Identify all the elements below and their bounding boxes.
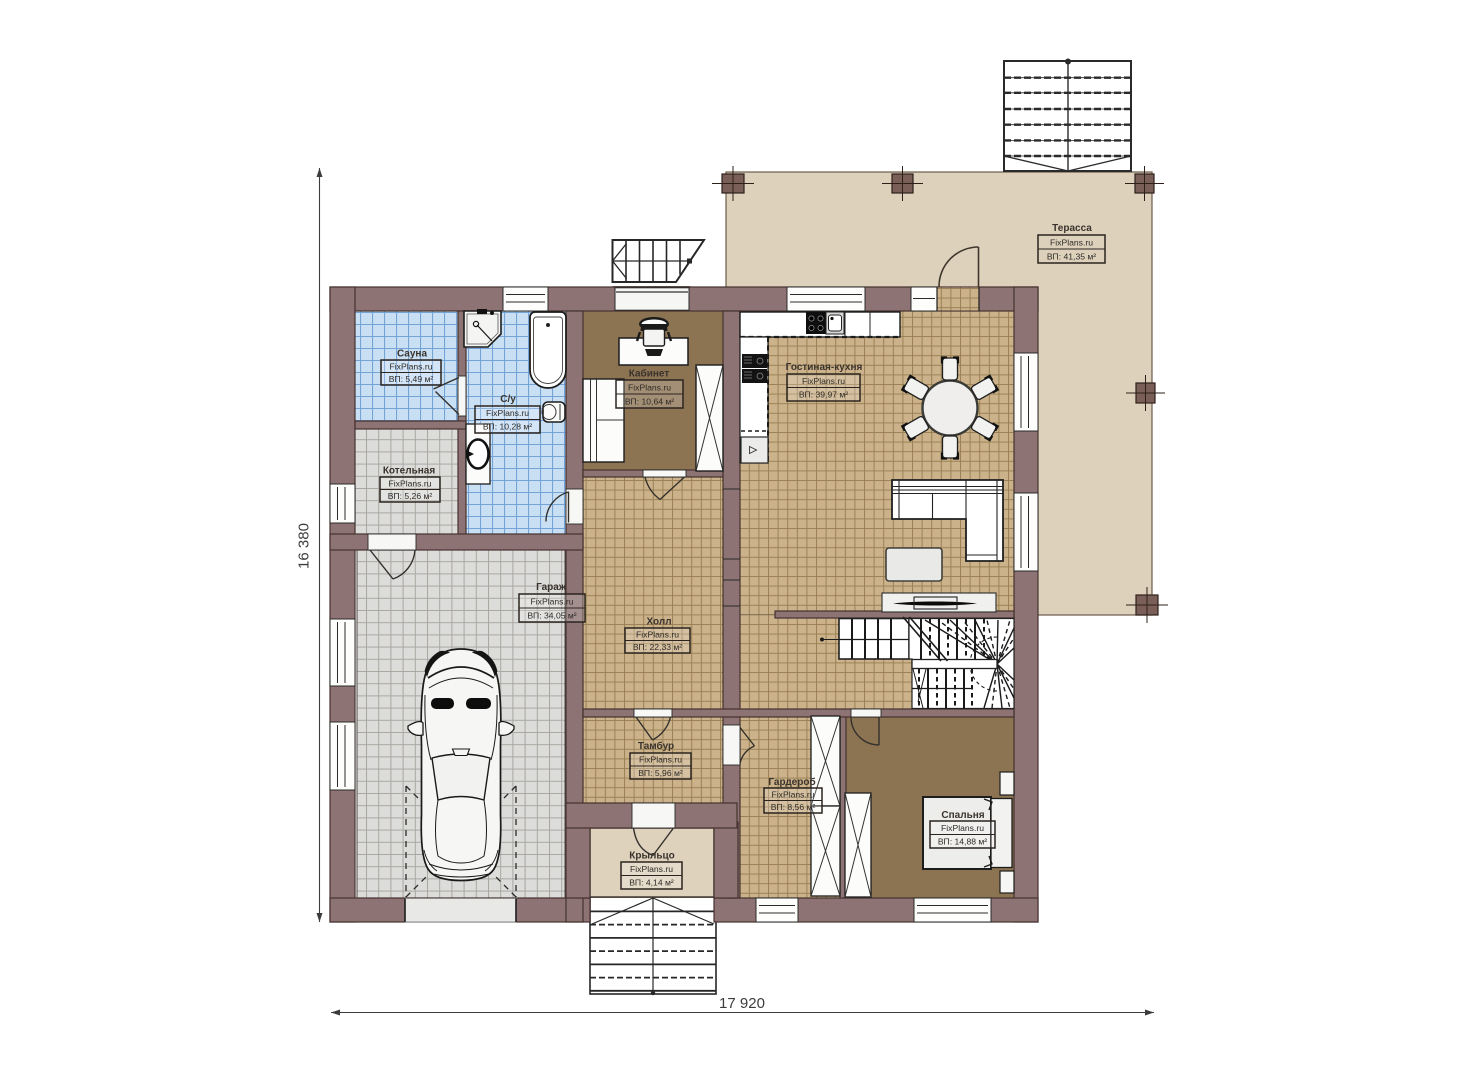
svg-text:FixPlans.ru: FixPlans.ru (941, 823, 984, 833)
svg-text:ВП: 4,14 м²: ВП: 4,14 м² (629, 878, 674, 888)
svg-text:ВП: 22,33 м²: ВП: 22,33 м² (633, 642, 682, 652)
svg-text:Холл: Холл (646, 617, 671, 628)
svg-text:ВП: 5,96 м²: ВП: 5,96 м² (638, 768, 683, 778)
svg-text:Крыльцо: Крыльцо (629, 851, 675, 862)
svg-text:FixPlans.ru: FixPlans.ru (630, 864, 673, 874)
svg-text:Сауна: Сауна (397, 349, 428, 360)
svg-text:Кабинет: Кабинет (629, 368, 670, 380)
svg-text:Гардероб: Гардероб (768, 776, 815, 788)
svg-text:FixPlans.ru: FixPlans.ru (636, 630, 679, 640)
svg-text:FixPlans.ru: FixPlans.ru (389, 479, 432, 489)
svg-text:FixPlans.ru: FixPlans.ru (390, 362, 433, 372)
svg-text:FixPlans.ru: FixPlans.ru (486, 408, 529, 418)
svg-text:16 380: 16 380 (296, 523, 313, 569)
svg-text:Терасса: Терасса (1052, 223, 1092, 234)
svg-text:ВП: 34,05 м²: ВП: 34,05 м² (527, 611, 576, 621)
svg-text:ВП: 8,56 м²: ВП: 8,56 м² (771, 802, 816, 812)
svg-text:ВП: 14,88 м²: ВП: 14,88 м² (938, 837, 987, 847)
svg-text:ВП: 5,26 м²: ВП: 5,26 м² (388, 491, 433, 501)
svg-text:ВП: 41,35 м²: ВП: 41,35 м² (1047, 252, 1096, 262)
svg-text:FixPlans.ru: FixPlans.ru (1050, 238, 1093, 248)
svg-text:17 920: 17 920 (719, 995, 765, 1012)
svg-text:Гостиная-кухня: Гостиная-кухня (786, 362, 863, 373)
svg-text:С/у: С/у (500, 394, 516, 405)
svg-text:FixPlans.ru: FixPlans.ru (772, 790, 815, 800)
svg-text:Тамбур: Тамбур (638, 740, 674, 752)
svg-text:FixPlans.ru: FixPlans.ru (628, 383, 671, 393)
svg-text:FixPlans.ru: FixPlans.ru (802, 376, 845, 386)
svg-text:FixPlans.ru: FixPlans.ru (639, 755, 682, 765)
svg-text:Котельная: Котельная (383, 466, 436, 477)
svg-text:FixPlans.ru: FixPlans.ru (531, 597, 574, 607)
svg-text:ВП: 10,28 м²: ВП: 10,28 м² (483, 422, 532, 432)
svg-text:Спальня: Спальня (941, 810, 984, 821)
svg-text:ВП: 5,49 м²: ВП: 5,49 м² (389, 374, 434, 384)
svg-text:Гараж: Гараж (536, 582, 567, 593)
svg-text:ВП: 10,64 м²: ВП: 10,64 м² (625, 397, 674, 407)
svg-text:ВП: 39,97 м²: ВП: 39,97 м² (799, 390, 848, 400)
